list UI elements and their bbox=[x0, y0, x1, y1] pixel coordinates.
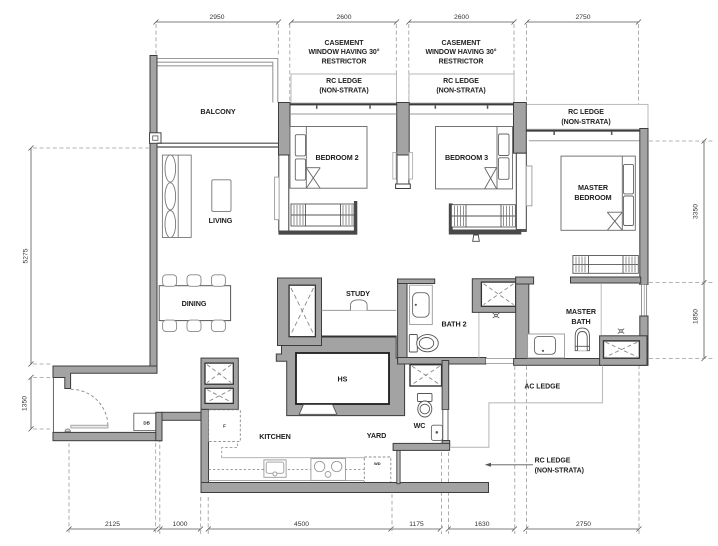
svg-text:BALCONY: BALCONY bbox=[200, 107, 235, 116]
svg-text:2950: 2950 bbox=[210, 14, 225, 21]
svg-text:RESTRICTOR: RESTRICTOR bbox=[439, 59, 484, 66]
svg-text:BEDROOM 3: BEDROOM 3 bbox=[445, 153, 488, 162]
svg-text:BEDROOM 2: BEDROOM 2 bbox=[315, 153, 358, 162]
svg-text:1850: 1850 bbox=[693, 309, 700, 324]
svg-text:1175: 1175 bbox=[409, 521, 424, 528]
svg-text:RESTRICTOR: RESTRICTOR bbox=[322, 59, 367, 66]
svg-text:CASEMENT: CASEMENT bbox=[325, 40, 365, 47]
svg-text:MASTER: MASTER bbox=[578, 183, 609, 192]
svg-text:RC LEDGE: RC LEDGE bbox=[535, 457, 571, 464]
svg-text:HS: HS bbox=[338, 375, 348, 384]
svg-text:(NON-STRATA): (NON-STRATA) bbox=[436, 88, 485, 95]
svg-text:LIVING: LIVING bbox=[209, 216, 233, 225]
svg-text:RC LEDGE: RC LEDGE bbox=[443, 78, 479, 85]
svg-text:RC LEDGE: RC LEDGE bbox=[326, 78, 362, 85]
svg-text:(NON-STRATA): (NON-STRATA) bbox=[561, 119, 610, 126]
svg-text:4500: 4500 bbox=[294, 521, 309, 528]
svg-text:2600: 2600 bbox=[454, 14, 469, 21]
svg-text:WINDOW HAVING 30°: WINDOW HAVING 30° bbox=[308, 48, 379, 56]
svg-text:YARD: YARD bbox=[367, 431, 387, 440]
svg-text:WC: WC bbox=[414, 421, 426, 430]
svg-text:RC LEDGE: RC LEDGE bbox=[568, 109, 604, 116]
svg-text:3350: 3350 bbox=[693, 204, 700, 219]
svg-text:2600: 2600 bbox=[337, 14, 352, 21]
svg-text:MASTER: MASTER bbox=[566, 307, 597, 316]
svg-text:DINING: DINING bbox=[182, 299, 207, 308]
svg-text:WINDOW HAVING 30°: WINDOW HAVING 30° bbox=[425, 48, 496, 56]
svg-text:BATH 2: BATH 2 bbox=[441, 319, 466, 328]
svg-text:CASEMENT: CASEMENT bbox=[442, 40, 482, 47]
svg-text:1630: 1630 bbox=[475, 521, 490, 528]
svg-text:5275: 5275 bbox=[23, 248, 30, 263]
svg-text:1350: 1350 bbox=[22, 396, 29, 411]
svg-text:WD: WD bbox=[374, 461, 381, 466]
svg-text:BEDROOM: BEDROOM bbox=[574, 193, 611, 202]
svg-text:(NON-STRATA): (NON-STRATA) bbox=[535, 467, 584, 474]
svg-text:2750: 2750 bbox=[576, 521, 591, 528]
svg-text:KITCHEN: KITCHEN bbox=[259, 432, 291, 441]
svg-text:DB: DB bbox=[143, 420, 150, 425]
svg-text:STUDY: STUDY bbox=[346, 289, 370, 298]
svg-text:(NON-STRATA): (NON-STRATA) bbox=[319, 88, 368, 95]
svg-text:F: F bbox=[223, 424, 226, 429]
svg-text:BATH: BATH bbox=[571, 317, 590, 326]
svg-text:2125: 2125 bbox=[105, 521, 120, 528]
svg-text:AC LEDGE: AC LEDGE bbox=[524, 383, 560, 390]
svg-text:2750: 2750 bbox=[576, 14, 591, 21]
svg-text:1000: 1000 bbox=[173, 521, 188, 528]
